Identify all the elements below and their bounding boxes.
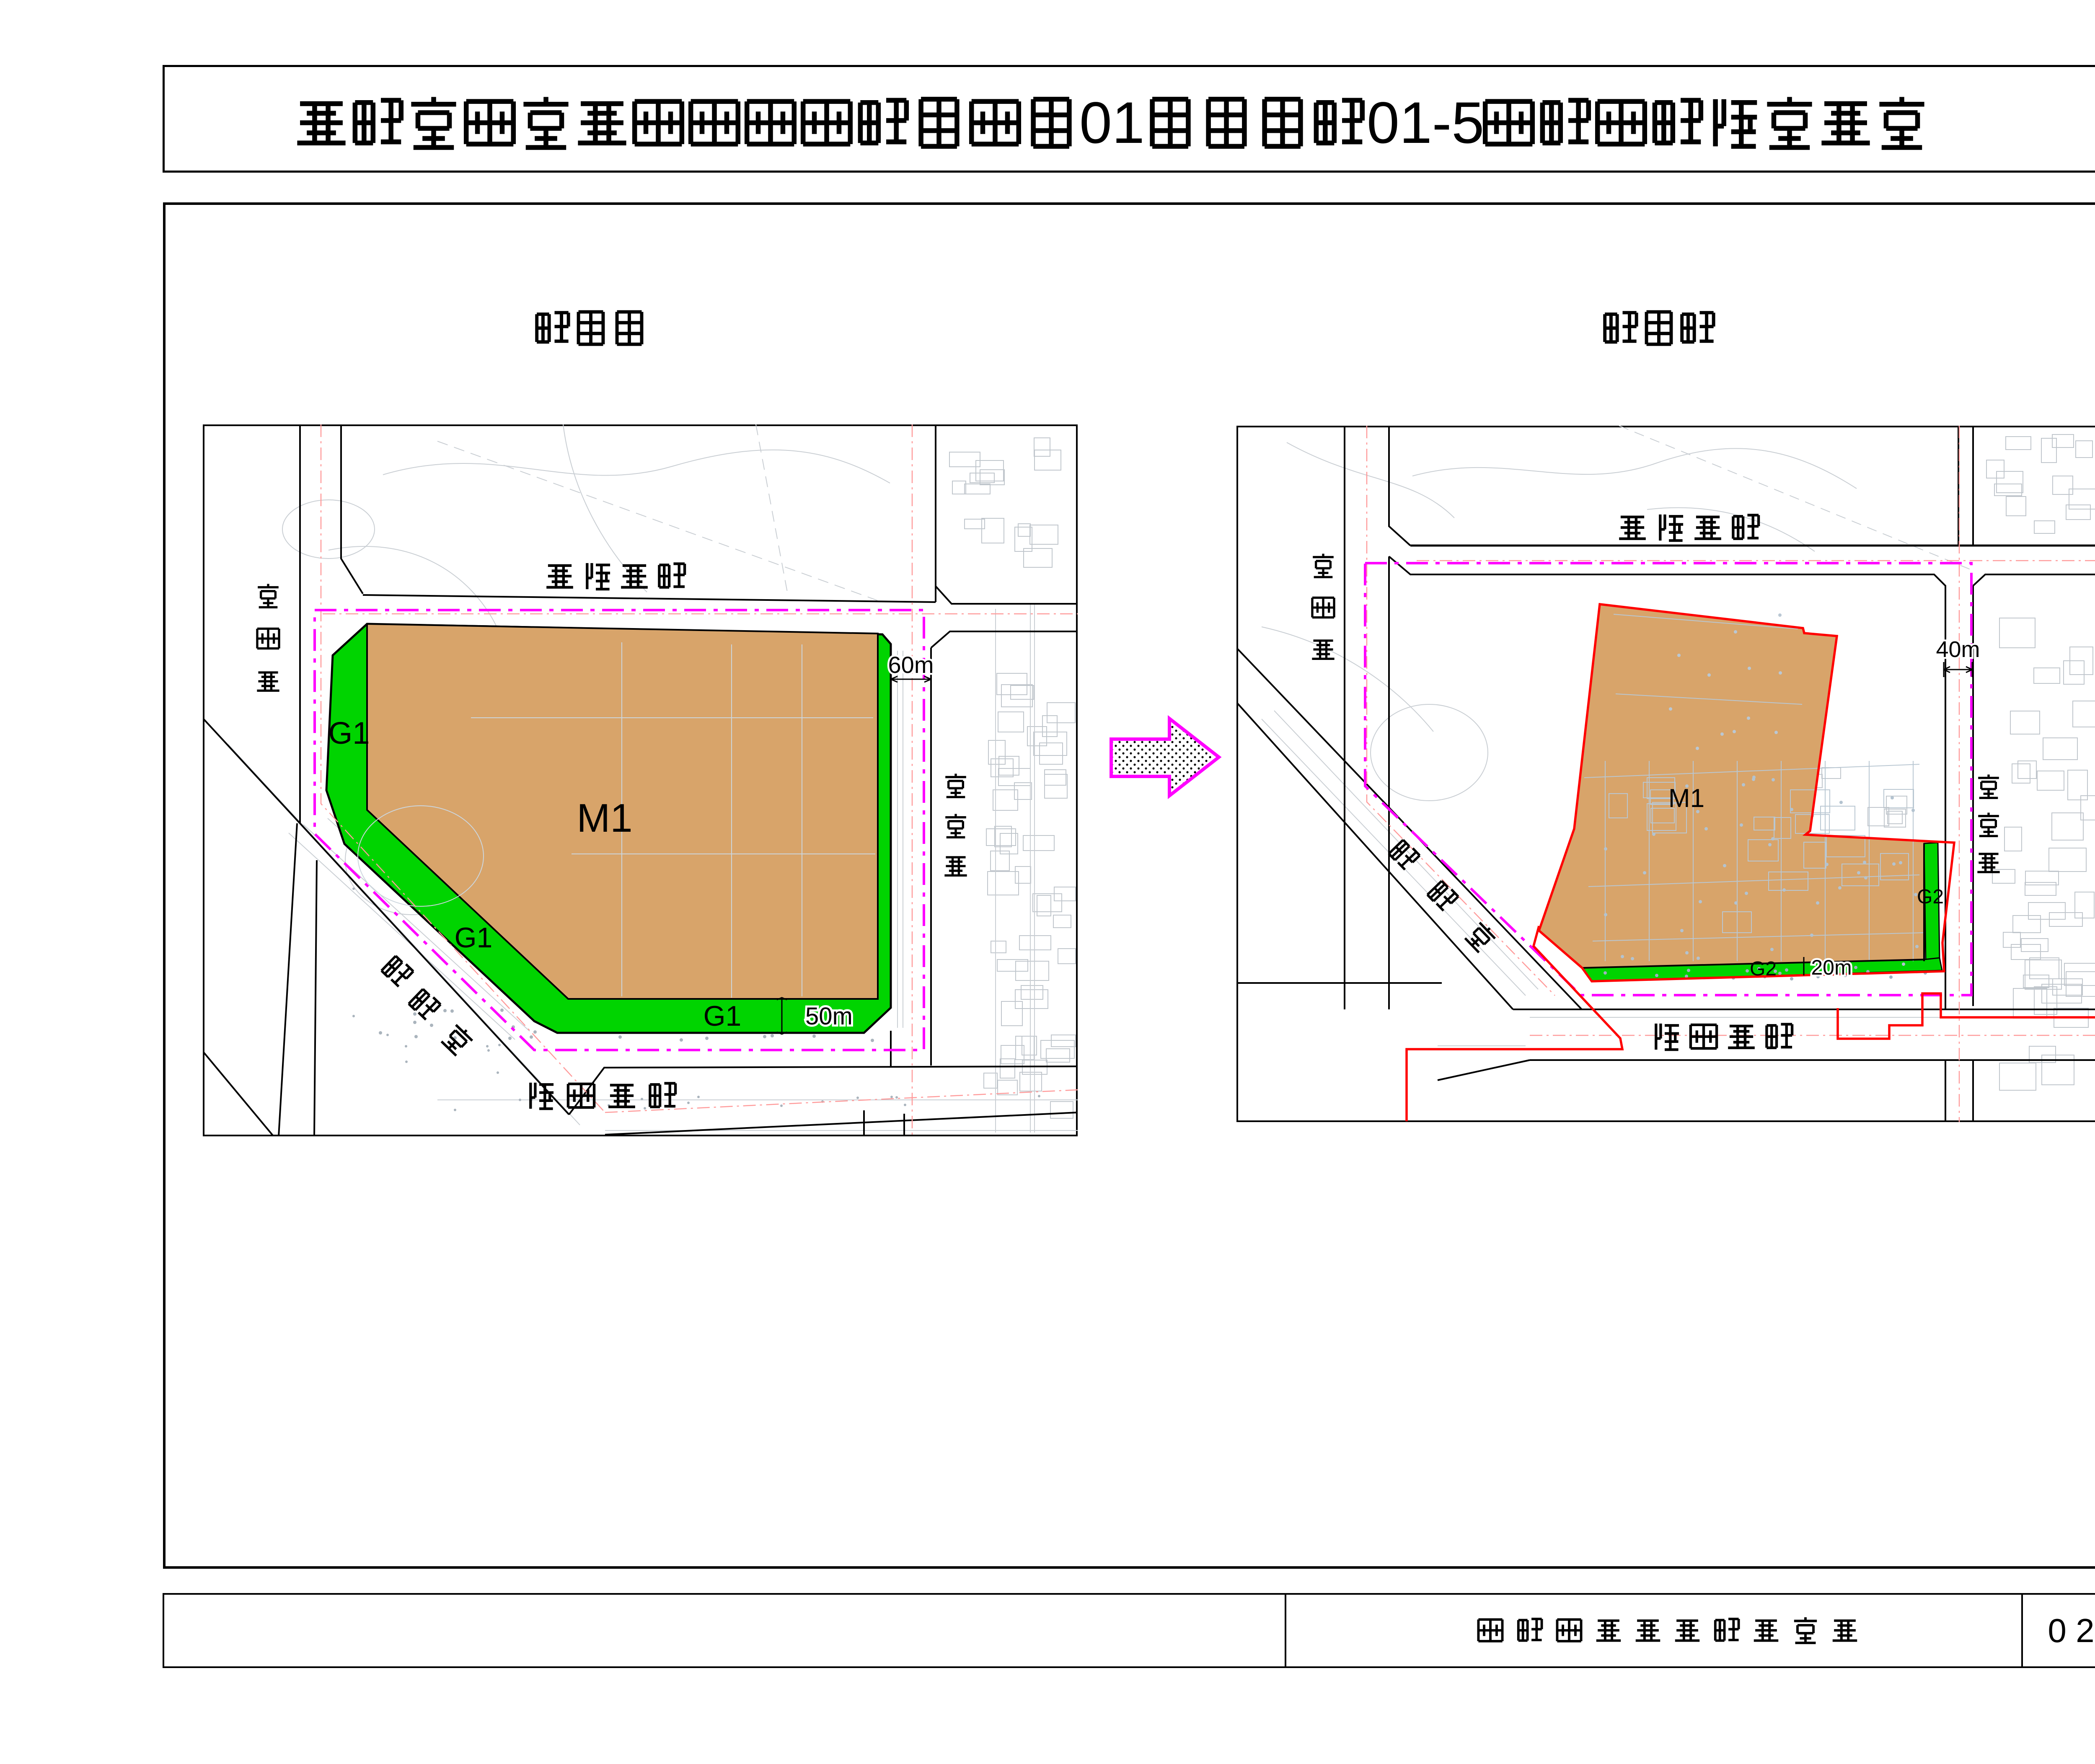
svg-text:G2: G2 — [1917, 886, 1944, 908]
svg-text:G2: G2 — [1750, 958, 1777, 980]
svg-text:01: 01 — [1079, 90, 1145, 155]
svg-text:M1: M1 — [577, 796, 632, 841]
svg-text:G1: G1 — [704, 1000, 742, 1032]
svg-text:01-5: 01-5 — [1367, 90, 1484, 155]
svg-text:20m: 20m — [1811, 956, 1852, 979]
svg-text:40m: 40m — [1936, 637, 1980, 662]
svg-text:50m: 50m — [805, 1003, 853, 1030]
svg-text:60m: 60m — [888, 652, 934, 678]
svg-text:G1: G1 — [328, 716, 370, 750]
svg-text:0 2: 0 2 — [2048, 1612, 2094, 1649]
svg-text:G1: G1 — [455, 922, 493, 954]
svg-text:M1: M1 — [1668, 784, 1704, 813]
